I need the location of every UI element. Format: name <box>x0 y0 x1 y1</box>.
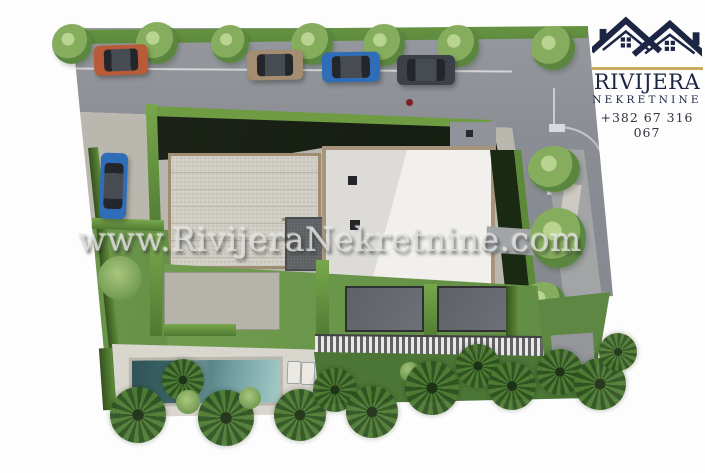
parked-car-blue-side <box>99 153 128 220</box>
hedge-row <box>164 324 236 336</box>
twin-house-roofs-icon <box>592 8 702 60</box>
agency-logo: RIVIJERA NEKRETNINE +382 67 316 067 <box>591 8 703 140</box>
car-glass <box>332 56 370 79</box>
road-marking <box>549 124 565 132</box>
site-plan-rendering: www.RivijeraNekretnine.com RIVIJERA NEKR… <box>0 0 705 473</box>
palm-tree <box>599 333 637 371</box>
sunken-terrace <box>437 286 511 332</box>
shrub <box>239 387 261 409</box>
watermark: www.RivijeraNekretnine.com <box>20 220 640 259</box>
hedge-row <box>316 260 329 338</box>
parked-car-orange <box>93 44 148 76</box>
roof-skylight <box>348 176 357 185</box>
street-tree <box>52 24 92 64</box>
parked-car-beige <box>247 50 304 81</box>
car-glass <box>104 48 139 71</box>
gravel-terrace-extension <box>282 153 321 221</box>
brand-phone: +382 67 316 067 <box>591 110 703 140</box>
patio <box>164 272 280 330</box>
hedge-row <box>424 284 437 340</box>
utility-marker <box>406 99 413 106</box>
shrub <box>176 390 200 414</box>
palm-tree <box>488 362 536 410</box>
hedge-row <box>506 286 518 336</box>
palm-tree <box>346 386 398 438</box>
sun-lounger <box>287 361 302 384</box>
brand-subtitle: NEKRETNINE <box>591 94 703 106</box>
parked-car-dark <box>397 55 455 85</box>
sun-lounger <box>301 362 316 385</box>
palm-tree <box>110 387 166 443</box>
sunken-terrace <box>345 286 424 332</box>
palm-tree <box>405 361 459 415</box>
car-glass <box>103 163 124 210</box>
entrance-door <box>466 130 473 137</box>
car-glass <box>407 59 445 81</box>
lamp-post <box>553 88 555 126</box>
side-tree <box>528 146 580 192</box>
street-tree <box>211 25 249 63</box>
parked-car-blue <box>322 51 381 82</box>
street-tree <box>531 26 575 70</box>
garden-tree <box>98 256 142 300</box>
car-glass <box>257 54 293 77</box>
brand-name: RIVIJERA <box>591 71 703 93</box>
